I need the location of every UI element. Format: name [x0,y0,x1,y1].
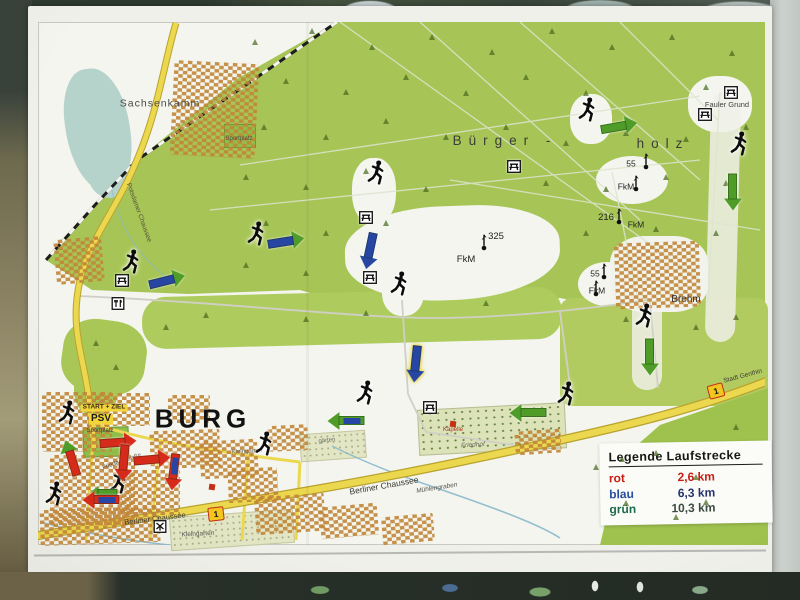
tree-icon [309,28,315,34]
runner-icon [731,131,750,162]
runner-icon [123,249,142,275]
arrow-overlay [344,418,361,423]
tree-icon [703,84,709,90]
legend-color-name: grün [609,502,653,517]
arrow-body [600,120,627,133]
picnic-table-icon [363,271,377,284]
runner-icon [59,400,78,426]
legend-title: Legende Laufstrecke [608,448,762,468]
building-cluster [381,513,435,545]
mill-icon [154,520,167,533]
tree-icon [283,78,289,84]
tree-icon [443,134,449,140]
runner-icon [391,271,410,297]
runner-icon [558,381,577,412]
arrow-head [724,199,742,211]
building-cluster [254,493,326,536]
label-friedhof: Friedhof [461,442,485,450]
legend-distance: 6,3 km [653,485,715,500]
picnic-icon [363,271,377,289]
radio-mast-icon [592,280,601,297]
runner-icon [123,249,142,280]
picnic-icon [698,108,712,126]
tree-icon [619,456,625,462]
arrow-body [148,274,175,289]
arrow-body [729,174,738,200]
label-fkm-3: FkM [457,255,475,265]
tree-icon [303,184,309,190]
tree-icon [623,500,629,506]
tree-icon [463,90,469,96]
tree-icon [583,90,589,96]
tree-icon [429,34,435,40]
legend-entry: rot2,6 km [609,469,763,486]
label-burg: BURG [155,405,252,432]
route-arrow-red [113,444,134,482]
tree-icon [503,124,509,130]
building-cluster [53,236,105,285]
route-arrow-red [83,491,120,509]
tree-icon [623,316,629,322]
tree-icon [369,44,375,50]
runner-icon [46,481,65,512]
label-elev-325: 325 [488,232,504,242]
mill-icon [154,520,167,538]
runner-icon [368,160,387,186]
tree-icon [593,464,599,470]
runner-icon [579,97,598,128]
picnic-icon [724,86,738,104]
tree-icon [713,230,719,236]
route-arrow-blue [405,345,427,384]
arrow-body [411,345,423,372]
radio-mast-icon [642,153,651,175]
label-elev-216: 216 [598,213,614,223]
label-brehm: Brehm [671,295,700,306]
runner-icon [256,431,275,462]
tree-icon [343,89,349,95]
picnic-table-icon [698,108,712,121]
map-sign-photo: Legende Laufstrecke rot2,6 kmblau6,3 kmg… [0,0,800,600]
label-kapelle: Kapelle [443,427,463,433]
radio-mast-icon [600,263,609,280]
radio-mast-icon [615,208,624,225]
tree-icon [693,324,699,330]
tree-icon [252,39,258,45]
tree-icon [323,230,329,236]
building-cluster [514,428,562,455]
tree-icon [669,34,675,40]
legend-rows: rot2,6 kmblau6,3 kmgrün10,3 km [609,469,764,517]
tree-icon [703,499,709,505]
tree-icon [323,134,329,140]
tree-icon [383,118,389,124]
label-elev-55-1: 55 [626,160,635,169]
arrow-body [646,339,655,365]
tree-icon [583,230,589,236]
picnic-table-icon [423,401,437,414]
map-fold-crease [306,22,309,545]
label-sachsenkamm: Sachsenkamm [120,98,200,109]
restaurant-icon [112,297,125,315]
road-number-badge: 1 [207,506,225,522]
legend-entry: blau6,3 km [609,484,763,501]
picnic-icon [423,401,437,419]
tree-icon [743,124,749,130]
picnic-icon [507,160,521,178]
arrow-body [133,454,160,465]
picnic-table-icon [724,86,738,99]
arrow-body [339,417,365,426]
legend-distance: 2,6 km [653,469,715,484]
runner-icon [59,400,78,431]
arrow-overlay [99,497,116,502]
runner-icon [248,221,267,252]
building-cluster [319,503,380,540]
tree-icon [549,28,555,34]
picnic-icon [359,211,373,229]
tree-icon [653,226,659,232]
radio-mast-icon [615,208,624,230]
tree-icon [303,316,309,322]
runner-icon [248,221,267,247]
tree-icon [403,74,409,80]
tree-icon [483,300,489,306]
label-fkm-2: FkM [628,221,645,230]
arrow-head [405,370,424,384]
radio-mast-icon [480,234,489,251]
radio-mast-icon [592,280,601,302]
tree-icon [243,174,249,180]
lower-photo-panel [0,572,800,600]
tree-icon [243,262,249,268]
radio-mast-icon [480,234,489,256]
tree-icon [261,124,267,130]
tree-icon [383,220,389,226]
runner-icon [579,97,598,123]
legend-entry: grün10,3 km [609,500,763,517]
runner-icon [368,160,387,191]
label-psv: PSV [89,414,113,425]
radio-mast-icon [632,175,641,192]
arrow-body [65,450,81,477]
arrow-body [267,235,294,248]
arrow-head [113,469,132,483]
picnic-table-icon [507,160,521,173]
arrow-body [364,232,378,259]
restaurant-fork-knife-icon [112,297,125,310]
tree-icon [163,324,169,330]
tree-icon [693,474,699,480]
tree-icon [543,180,549,186]
tree-icon [303,270,309,276]
route-arrow-green [724,174,742,211]
label-sportplatz-nord: Sportplatz [225,136,252,142]
runner-icon [357,380,376,406]
tree-icon [423,186,429,192]
runner-icon [46,481,65,507]
arrow-head [641,364,659,376]
tree-icon [93,340,99,346]
arrow-body [94,496,120,505]
tree-icon [729,50,735,56]
tree-icon [673,514,679,520]
arrow-overlay [171,457,178,474]
route-arrow-green [510,404,547,422]
legend-color-name: rot [609,471,653,486]
tree-icon [363,310,369,316]
radio-mast-icon [632,175,641,197]
label-elev-55-2: 55 [590,270,599,279]
tree-icon [603,186,609,192]
tree-icon [733,314,739,320]
route-arrow-green [641,339,659,376]
radio-mast-icon [642,153,651,170]
tree-icon [733,424,739,430]
tree-icon [489,49,495,55]
tree-icon [523,74,529,80]
arrow-body [521,409,547,418]
landmark-building-marker [209,484,216,491]
secondary-road [76,23,176,448]
legend-color-name: blau [609,486,653,501]
runner-icon [256,431,275,457]
runner-icon [636,303,655,334]
route-arrow-green [328,412,365,430]
tree-icon [663,174,669,180]
label-start-ziel: START + ZIEL [81,405,128,412]
label-buergerholz-2: holz [637,137,690,151]
runner-icon [636,303,655,329]
background-wall [770,0,800,600]
tree-icon [113,364,119,370]
arrow-body [169,453,181,480]
runner-icon [731,131,750,157]
label-buergerholz-1: Bürger - [453,134,558,148]
legend-panel: Legende Laufstrecke rot2,6 kmblau6,3 kmg… [599,441,772,526]
tree-icon [563,140,569,146]
runner-icon [357,380,376,411]
radio-mast-icon [600,263,609,285]
arrow-body [119,444,130,471]
landmark-building-marker [450,421,457,428]
tree-icon [653,450,659,456]
picnic-table-icon [359,211,373,224]
tree-icon [609,44,615,50]
runner-icon [391,271,410,302]
tree-icon [203,312,209,318]
runner-icon [558,381,577,407]
